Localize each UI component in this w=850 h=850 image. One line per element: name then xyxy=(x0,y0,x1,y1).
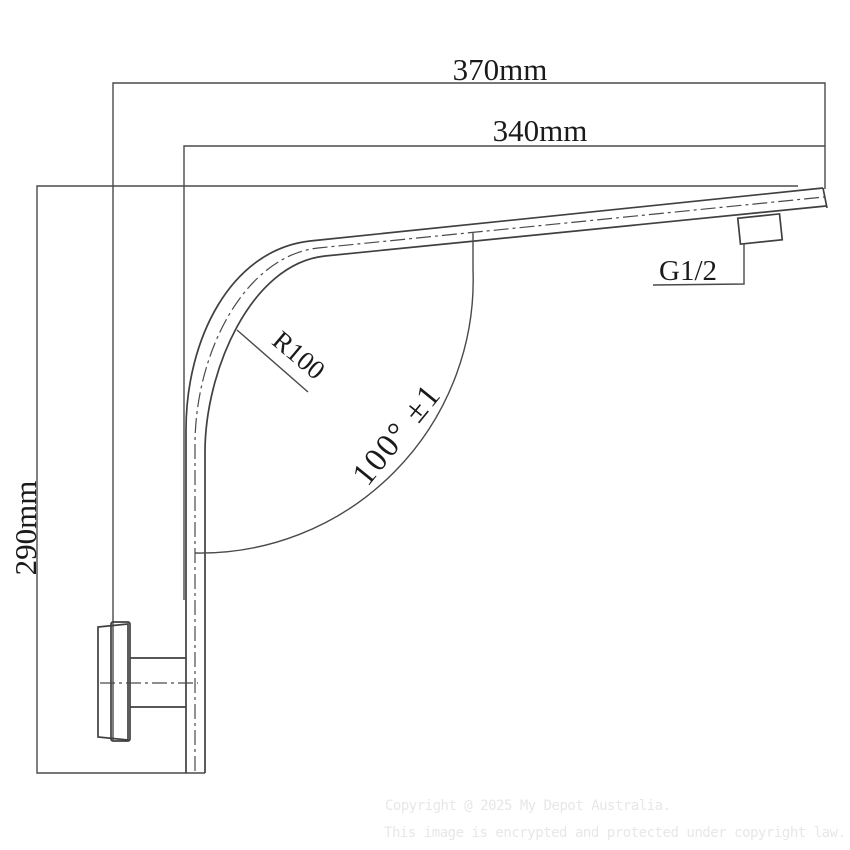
dimension-arm-width xyxy=(184,146,825,600)
dimension-arm-width-lines xyxy=(184,146,825,600)
height-label: 290mm xyxy=(8,481,43,576)
dimension-overall-width-lines xyxy=(113,83,825,740)
watermark-line-2: This image is encrypted and protected un… xyxy=(384,825,846,841)
thread-fitting-body xyxy=(738,214,782,244)
pipe-outer-wall xyxy=(186,188,823,773)
bend-angle-label: 100° ±1 xyxy=(346,377,449,493)
pipe-centerline xyxy=(195,197,824,771)
thread-size-label: G1/2 xyxy=(659,255,717,287)
bend-radius-label: R100 xyxy=(267,325,331,386)
watermark: Copyright @ 2025 My Depot Australia. Thi… xyxy=(384,798,846,841)
pipe-inner-wall xyxy=(205,206,826,773)
pipe-outline xyxy=(186,188,827,773)
watermark-line-1: Copyright @ 2025 My Depot Australia. xyxy=(385,798,671,814)
overall-width-label: 370mm xyxy=(453,52,548,87)
pipe-end-cap xyxy=(823,188,827,208)
shower-arm-dimension-diagram: 370mm 340mm 290mm R100 100° ±1 G1/2 Copy… xyxy=(0,0,850,850)
dimension-overall-width xyxy=(113,83,825,740)
arm-width-label: 340mm xyxy=(493,113,588,148)
technical-drawing-page: 370mm 340mm 290mm R100 100° ±1 G1/2 Copy… xyxy=(0,0,850,850)
